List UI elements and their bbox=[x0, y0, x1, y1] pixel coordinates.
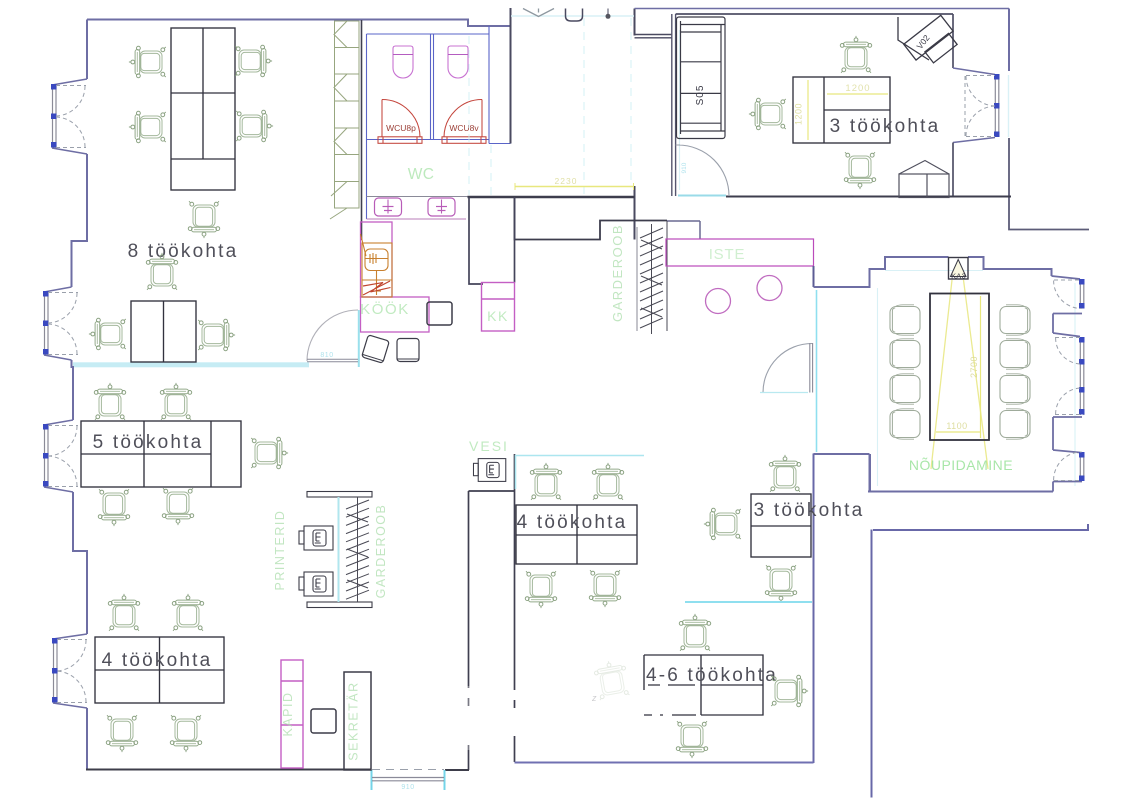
svg-text:4 töökohta: 4 töökohta bbox=[517, 512, 628, 533]
svg-text:910: 910 bbox=[681, 162, 688, 173]
svg-text:WCU8p: WCU8p bbox=[386, 123, 416, 133]
svg-text:8 töökohta: 8 töökohta bbox=[128, 241, 239, 262]
svg-text:z: z bbox=[591, 693, 597, 703]
svg-text:GARDEROOB: GARDEROOB bbox=[374, 504, 388, 599]
svg-text:3 töökohta: 3 töökohta bbox=[830, 116, 941, 137]
svg-text:1100: 1100 bbox=[946, 421, 967, 431]
svg-text:KAPID: KAPID bbox=[281, 691, 295, 736]
svg-text:2230: 2230 bbox=[555, 176, 578, 186]
svg-text:3 töökohta: 3 töökohta bbox=[754, 500, 865, 521]
svg-text:PRINTERID: PRINTERID bbox=[273, 510, 287, 591]
svg-text:NÕUPIDAMINE: NÕUPIDAMINE bbox=[909, 457, 1013, 473]
svg-text:GARDEROOB: GARDEROOB bbox=[610, 224, 625, 322]
svg-text:2700: 2700 bbox=[969, 356, 979, 378]
svg-text:VESI: VESI bbox=[469, 438, 509, 454]
svg-text:WC: WC bbox=[408, 166, 434, 183]
svg-text:SEKRETÄR: SEKRETÄR bbox=[347, 681, 361, 760]
svg-text:KÖÖK: KÖÖK bbox=[360, 300, 410, 318]
svg-text:810: 810 bbox=[320, 352, 333, 359]
svg-text:KA3: KA3 bbox=[951, 272, 966, 281]
svg-text:910: 910 bbox=[401, 784, 414, 791]
svg-text:S05: S05 bbox=[695, 85, 706, 106]
svg-text:4 töökohta: 4 töökohta bbox=[102, 650, 213, 671]
svg-text:1200: 1200 bbox=[845, 83, 870, 94]
svg-text:4-6 töökohta: 4-6 töökohta bbox=[646, 665, 778, 686]
svg-text:KK: KK bbox=[487, 308, 509, 324]
svg-text:ISTE: ISTE bbox=[709, 246, 746, 263]
svg-text:WCU8v: WCU8v bbox=[449, 123, 479, 133]
svg-text:5 töökohta: 5 töökohta bbox=[93, 432, 204, 453]
svg-text:1200: 1200 bbox=[794, 103, 804, 125]
